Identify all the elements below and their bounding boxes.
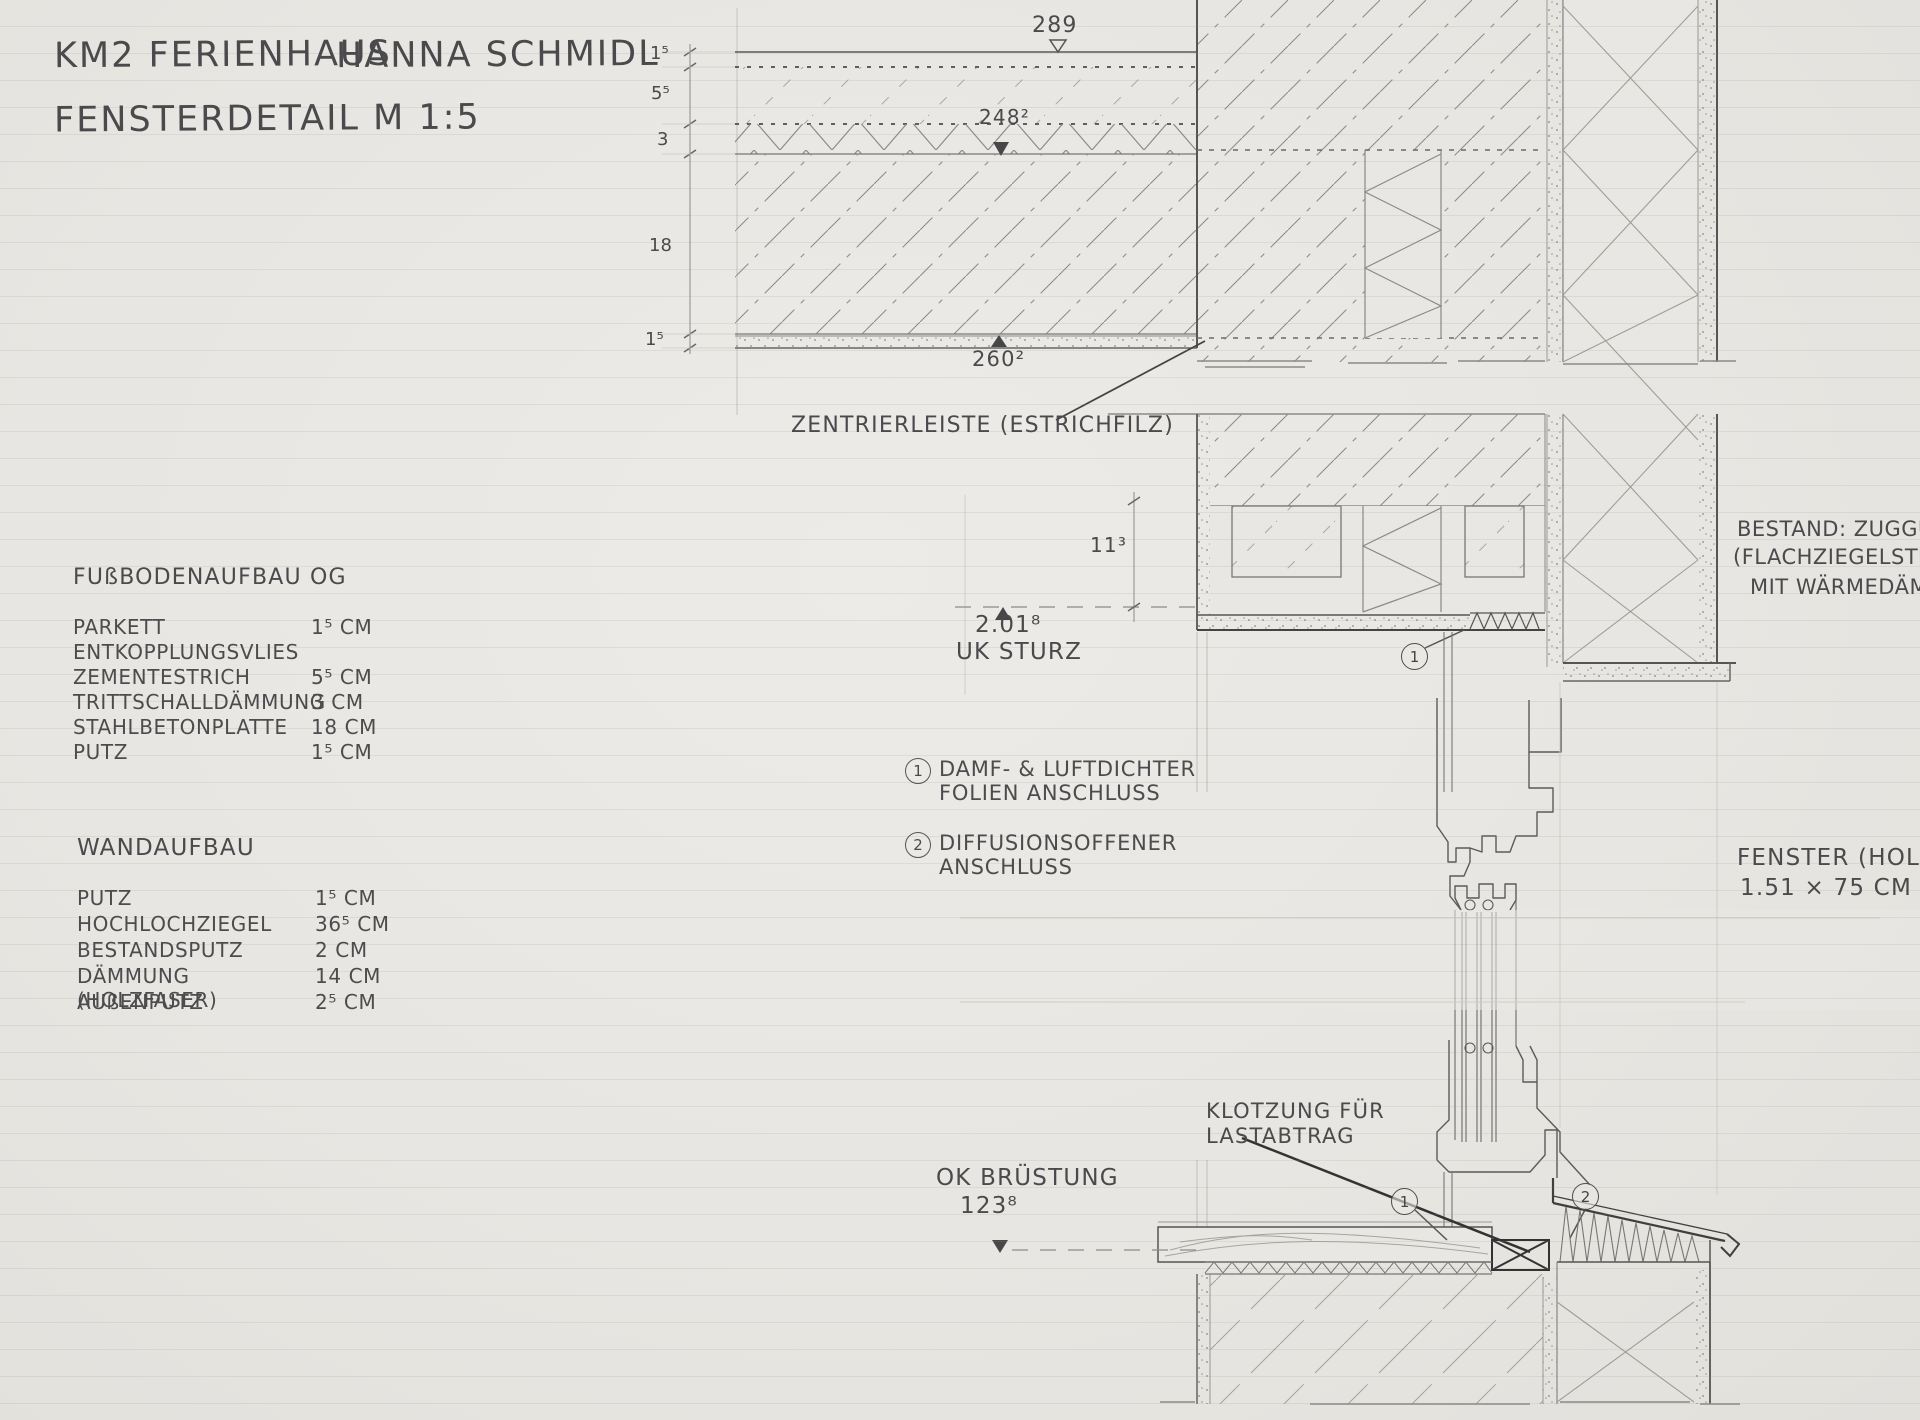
table-row-label: TRITTSCHALLDÄMMUNG: [73, 690, 311, 715]
level-underside-ceiling: 260²: [972, 348, 1025, 372]
dim-trittschall: 3: [657, 130, 668, 150]
table-row-value: 14 CM: [315, 964, 405, 990]
table-row-value: 5⁵ CM: [311, 665, 401, 690]
table-row-label: PUTZ: [73, 740, 311, 765]
dim-betonplatte: 18: [649, 236, 672, 256]
callout-2-sill: 2: [1572, 1183, 1599, 1210]
note-diffusion-open: 2 DIFFUSIONSOFFENER ANSCHLUSS: [905, 831, 1177, 879]
sill-area-drawing: [1158, 1138, 1739, 1274]
bestand-label-line2: (FLACHZIEGELSTÜRZE): [1733, 546, 1920, 570]
table-row-value: 2⁵ CM: [315, 990, 405, 1016]
table-row-label: STAHLBETONPLATTE: [73, 715, 311, 740]
scan-fade-band: [940, 910, 1920, 1010]
dimension-chain: [662, 44, 735, 354]
wall-buildup-heading: WANDAUFBAU: [77, 836, 255, 862]
dim-parkett: 1⁵: [650, 44, 669, 64]
table-row-value: 1⁵ CM: [311, 740, 401, 765]
wall-buildup-table: PUTZ 1⁵ CM HOCHLOCHZIEGEL 36⁵ CM BESTAND…: [77, 886, 405, 1016]
dim-putz: 1⁵: [645, 330, 664, 350]
note-1-line2: FOLIEN ANSCHLUSS: [939, 781, 1196, 805]
lintel-block-drawing: [1197, 414, 1736, 681]
klotzung-label-line2: LASTABTRAG: [1206, 1125, 1355, 1149]
table-row-label: ZEMENTESTRICH: [73, 665, 311, 690]
table-row-label: ENTKOPPLUNGSVLIES: [73, 640, 311, 665]
title-author: HANNA SCHMIDL: [336, 35, 660, 76]
floor-buildup-heading: FUßBODENAUFBAU OG: [73, 566, 347, 591]
dimension-11-3: 11³: [1090, 534, 1127, 556]
note-1-line1: DAMF- & LUFTDICHTER: [939, 757, 1196, 781]
table-row-value: 3 CM: [311, 690, 401, 715]
level-ok-bruestung-label: OK BRÜSTUNG: [936, 1166, 1119, 1192]
table-row-label: HOCHLOCHZIEGEL: [77, 912, 315, 938]
level-uk-sturz-label: UK STURZ: [956, 640, 1082, 666]
note-2-line2: ANSCHLUSS: [939, 855, 1177, 879]
note-2-number-circle: 2: [905, 832, 931, 858]
level-ok-bruestung-value: 123⁸: [960, 1194, 1018, 1220]
level-uk-sturz-value: 2.01⁸: [975, 613, 1041, 639]
table-row-label: BESTANDSPUTZ: [77, 938, 315, 964]
fenster-label-line1: FENSTER (HOLZ): [1737, 846, 1920, 872]
table-row-label: DÄMMUNG (HOLZFASER): [77, 964, 315, 990]
table-row-value: 2 CM: [315, 938, 405, 964]
callout-1-sill: 1: [1391, 1188, 1418, 1215]
bestand-label-line1: BESTAND: ZUGGURTE: [1737, 518, 1920, 542]
table-row-value: 36⁵ CM: [315, 912, 405, 938]
zentrierleiste-label: ZENTRIERLEISTE (ESTRICHFILZ): [791, 414, 1174, 439]
table-row-value: 1⁵ CM: [315, 886, 405, 912]
table-row-value: [311, 640, 401, 665]
floor-buildup-table: PARKETT 1⁵ CM ENTKOPPLUNGSVLIES ZEMENTES…: [73, 615, 401, 765]
table-row-value: 1⁵ CM: [311, 615, 401, 640]
note-1-number-circle: 1: [905, 758, 931, 784]
dim-estrich: 5⁵: [651, 84, 670, 104]
klotzung-label-line1: KLOTZUNG FÜR: [1206, 1100, 1385, 1124]
title-subtitle: FENSTERDETAIL M 1:5: [54, 99, 481, 141]
level-top-of-slab: 248²: [979, 106, 1030, 128]
fenster-label-line2: 1.51 × 75 CM: [1740, 876, 1912, 902]
parapet-wall-drawing: [1160, 1262, 1740, 1404]
note-vapour-seal: 1 DAMF- & LUFTDICHTER FOLIEN ANSCHLUSS: [905, 757, 1196, 805]
floor-assembly-drawing: [735, 8, 1197, 415]
note-2-line1: DIFFUSIONSOFFENER: [939, 831, 1177, 855]
table-row-label: PARKETT: [73, 615, 311, 640]
level-top-of-floor: 289: [1032, 14, 1078, 39]
callout-1-lintel: 1: [1401, 643, 1428, 670]
upper-wall-block-drawing: [1197, 0, 1717, 440]
section-break-marks: [1108, 361, 1736, 414]
table-row-label: PUTZ: [77, 886, 315, 912]
bestand-label-line3: MIT WÄRMEDÄMM: [1750, 576, 1920, 600]
table-row-value: 18 CM: [311, 715, 401, 740]
table-row-label: AUßENPUTZ: [77, 990, 315, 1016]
